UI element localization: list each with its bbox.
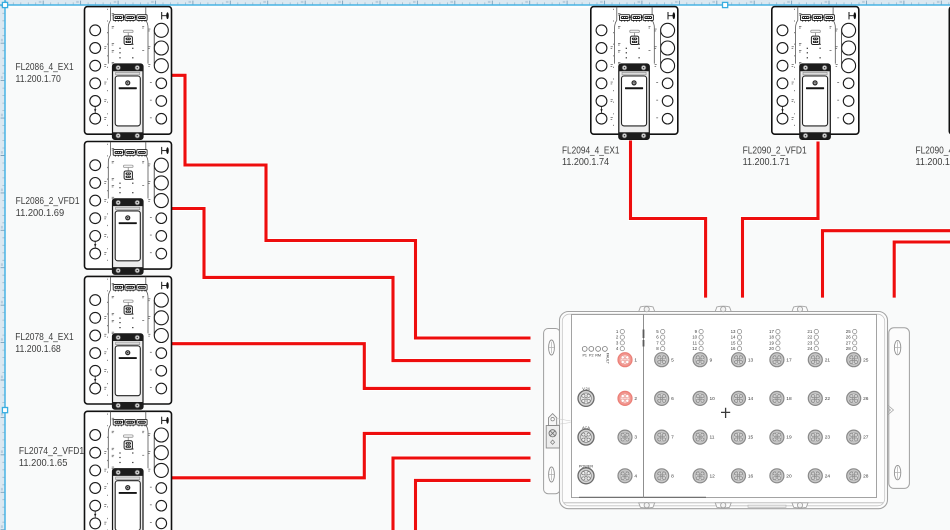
- svg-text:11.200.1.69: 11.200.1.69: [16, 207, 65, 219]
- svg-text:27: 27: [846, 340, 851, 345]
- svg-text:11.200.1.70: 11.200.1.70: [16, 74, 62, 85]
- svg-text:FL2086_2_VFD1: FL2086_2_VFD1: [16, 195, 80, 207]
- svg-text:24: 24: [807, 346, 812, 351]
- svg-text:11: 11: [710, 435, 715, 441]
- svg-text:23: 23: [825, 435, 831, 441]
- svg-text:28: 28: [863, 473, 869, 479]
- svg-text:12: 12: [710, 473, 716, 479]
- svg-text:P1: P1: [582, 354, 587, 358]
- svg-text:12: 12: [692, 346, 697, 351]
- svg-text:22: 22: [807, 335, 812, 340]
- svg-text:FAULT: FAULT: [606, 353, 610, 365]
- svg-text:17: 17: [786, 357, 792, 363]
- svg-text:22: 22: [825, 396, 831, 402]
- svg-text:11: 11: [693, 340, 698, 345]
- svg-text:1: 1: [634, 357, 637, 363]
- svg-text:26: 26: [846, 335, 851, 340]
- svg-text:4: 4: [634, 473, 637, 479]
- svg-text:15: 15: [731, 340, 736, 345]
- svg-text:21: 21: [825, 357, 831, 363]
- svg-text:20: 20: [769, 346, 774, 351]
- svg-text:9: 9: [710, 357, 713, 363]
- svg-text:24: 24: [825, 473, 831, 479]
- svg-text:FL2090_2_VFD1: FL2090_2_VFD1: [743, 146, 807, 157]
- svg-text:27: 27: [863, 435, 869, 441]
- svg-text:8: 8: [671, 473, 674, 479]
- svg-text:17: 17: [769, 329, 774, 334]
- svg-text:P2: P2: [589, 354, 594, 358]
- svg-text:10: 10: [710, 396, 716, 402]
- svg-text:11.200.1.68: 11.200.1.68: [15, 344, 61, 355]
- svg-text:2: 2: [634, 396, 637, 402]
- svg-text:6: 6: [671, 396, 674, 402]
- svg-text:18: 18: [769, 335, 774, 340]
- svg-text:5: 5: [671, 357, 674, 363]
- svg-text:18: 18: [786, 396, 792, 402]
- svg-text:21: 21: [807, 329, 812, 334]
- svg-text:FL2074_2_VFD1: FL2074_2_VFD1: [19, 445, 84, 457]
- svg-text:11.200.1.71: 11.200.1.71: [743, 157, 790, 168]
- svg-text:19: 19: [769, 340, 774, 345]
- svg-text:11.200.1.72: 11.200.1.72: [916, 157, 950, 168]
- svg-text:11.200.1.65: 11.200.1.65: [19, 457, 68, 469]
- svg-text:16: 16: [731, 346, 736, 351]
- svg-text:RM: RM: [595, 354, 601, 358]
- svg-text:25: 25: [863, 357, 869, 363]
- svg-text:3: 3: [634, 435, 637, 441]
- svg-text:28: 28: [846, 346, 851, 351]
- svg-text:16: 16: [748, 473, 754, 479]
- svg-text:13: 13: [748, 357, 754, 363]
- svg-text:26: 26: [863, 396, 869, 402]
- svg-text:FL2094_4_EX1: FL2094_4_EX1: [562, 146, 620, 157]
- svg-text:FL2090_4_EX1: FL2090_4_EX1: [916, 146, 950, 157]
- svg-text:19: 19: [786, 435, 792, 441]
- svg-text:13: 13: [731, 329, 736, 334]
- svg-text:11.200.1.74: 11.200.1.74: [562, 157, 609, 168]
- svg-text:25: 25: [846, 329, 851, 334]
- svg-text:ACA: ACA: [582, 426, 590, 430]
- svg-text:FL2086_4_EX1: FL2086_4_EX1: [16, 62, 74, 73]
- svg-text:POWER: POWER: [579, 465, 594, 469]
- svg-text:FL2078_4_EX1: FL2078_4_EX1: [15, 332, 74, 343]
- svg-text:14: 14: [731, 335, 736, 340]
- svg-text:7: 7: [671, 435, 674, 441]
- svg-text:20: 20: [786, 473, 792, 479]
- svg-text:V.24: V.24: [582, 387, 589, 391]
- svg-text:10: 10: [692, 335, 697, 340]
- svg-text:15: 15: [748, 435, 754, 441]
- svg-text:23: 23: [807, 340, 812, 345]
- svg-text:14: 14: [748, 396, 754, 402]
